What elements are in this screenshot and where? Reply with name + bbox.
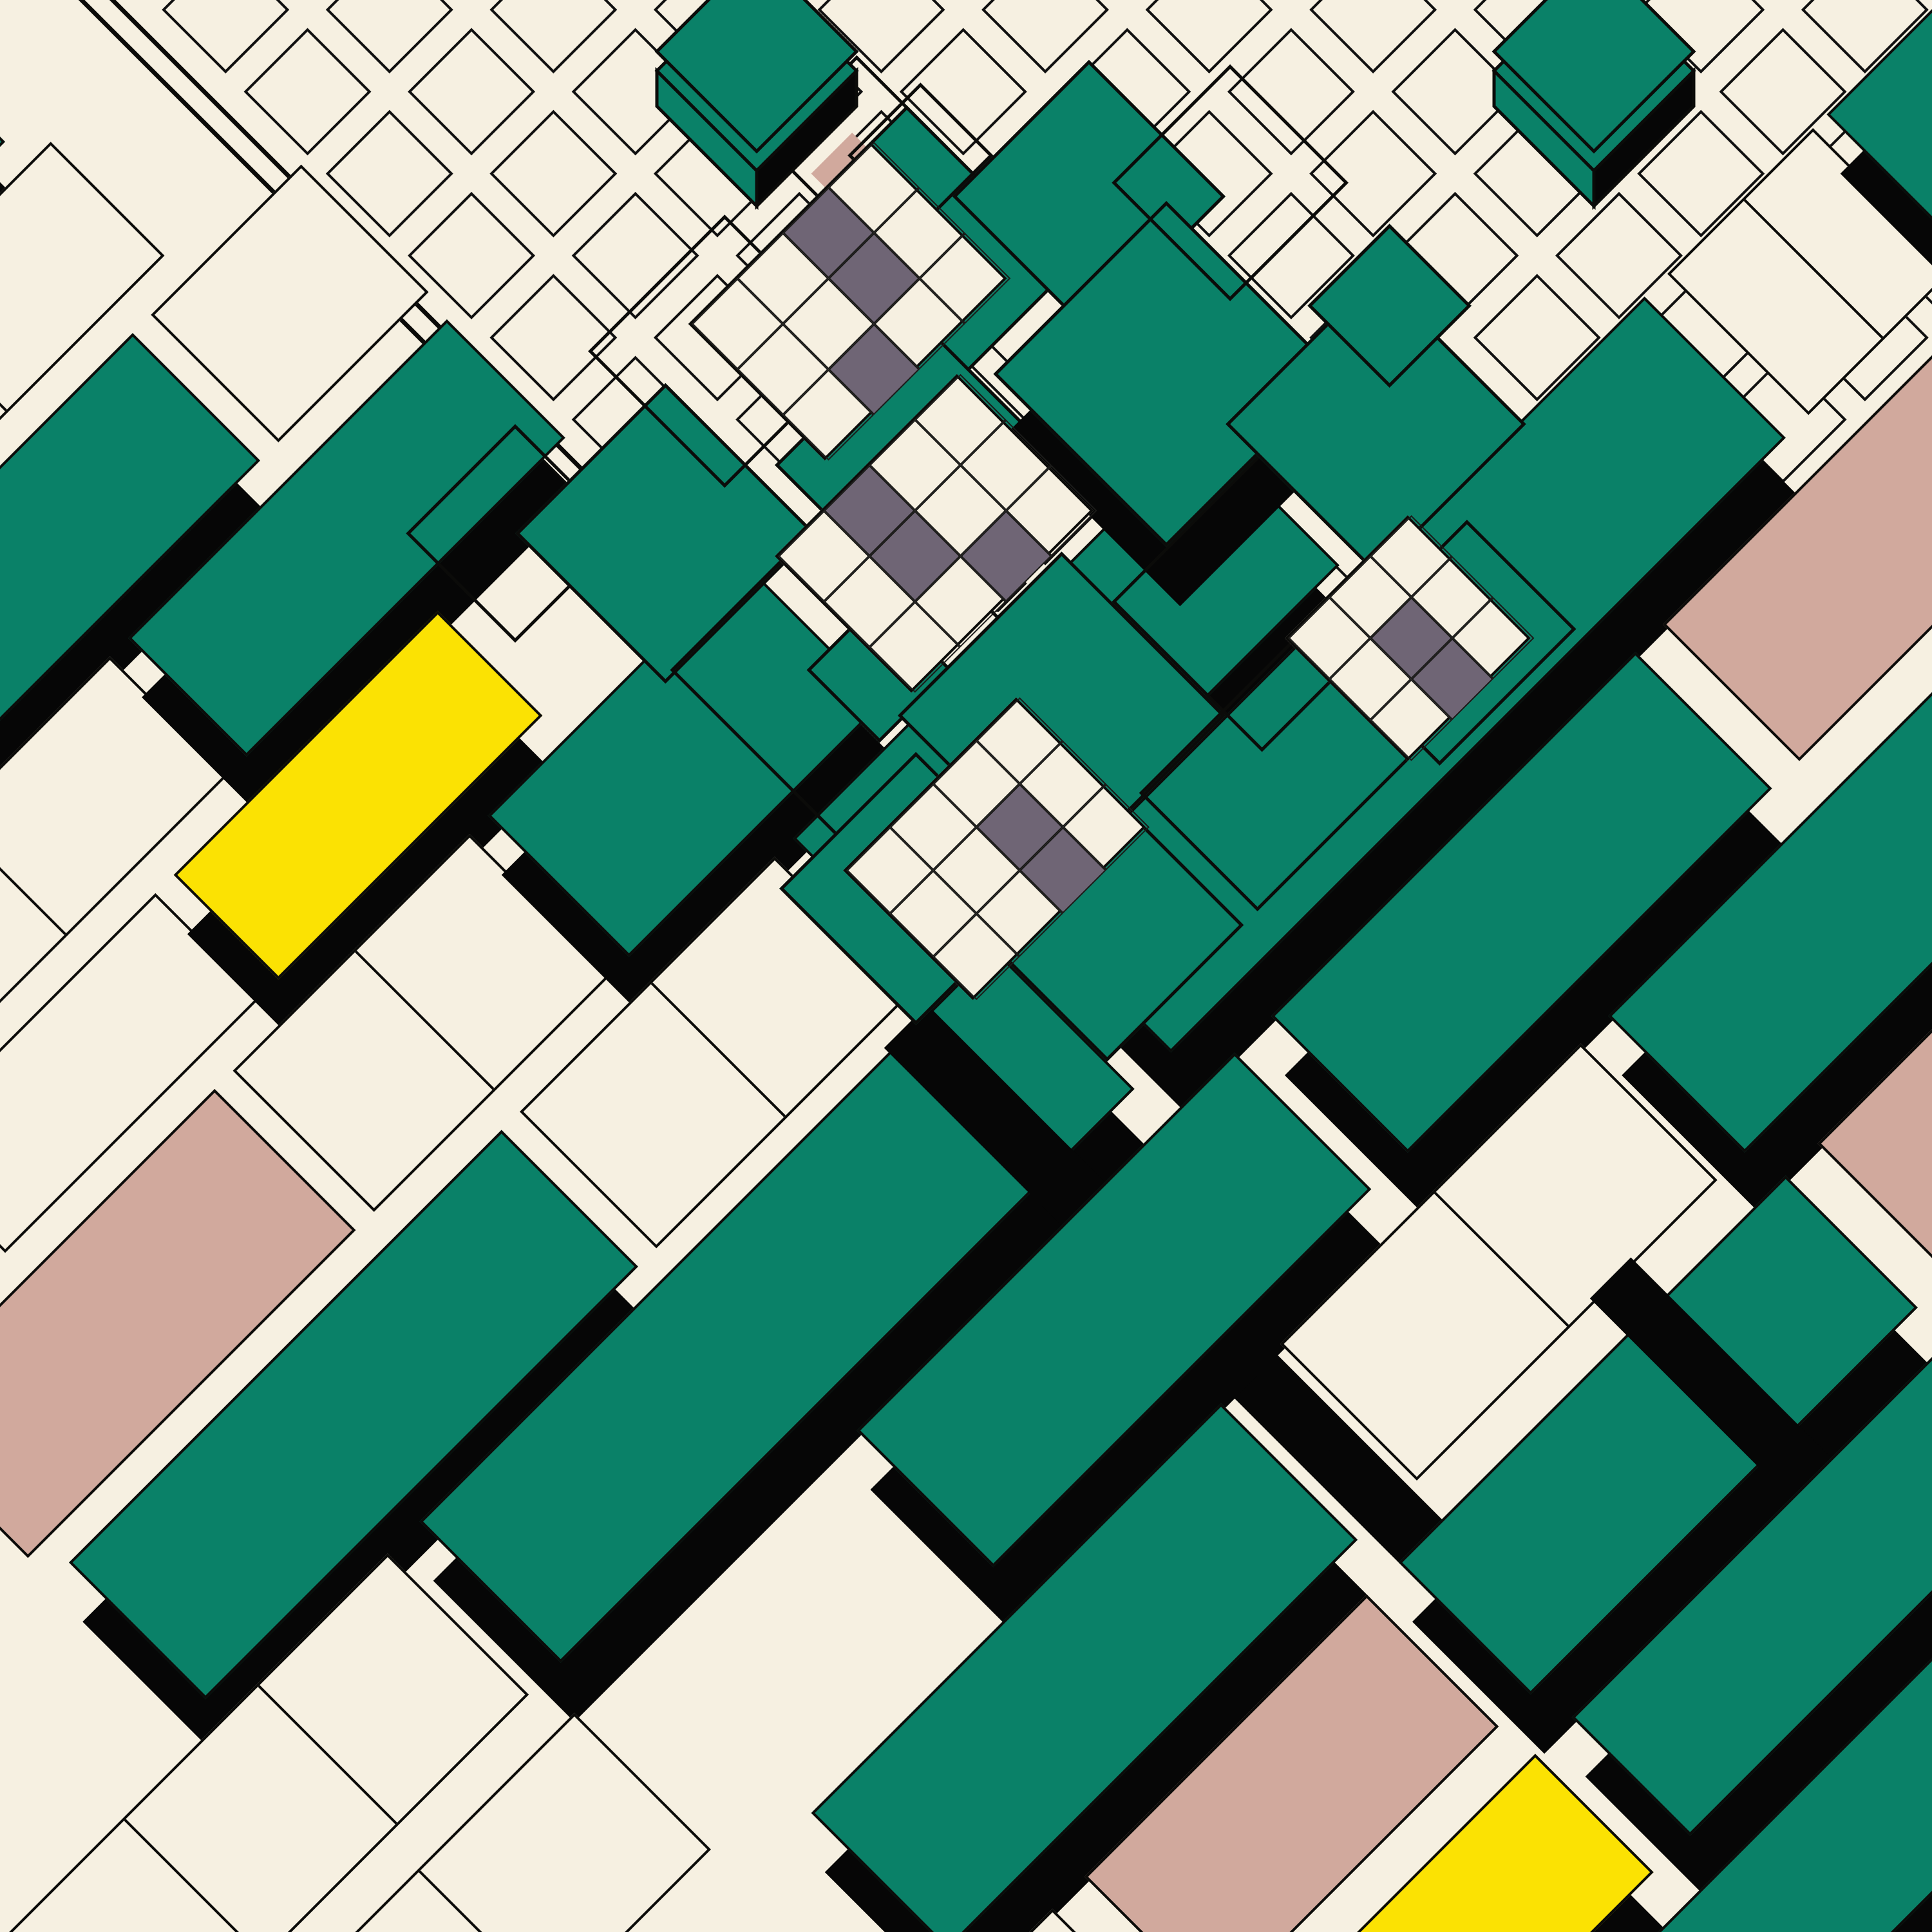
iso-box-tower xyxy=(657,0,857,206)
iso-box-tower xyxy=(1494,0,1694,206)
artwork-canvas xyxy=(0,0,1932,1932)
tower-layer xyxy=(0,0,1932,1932)
